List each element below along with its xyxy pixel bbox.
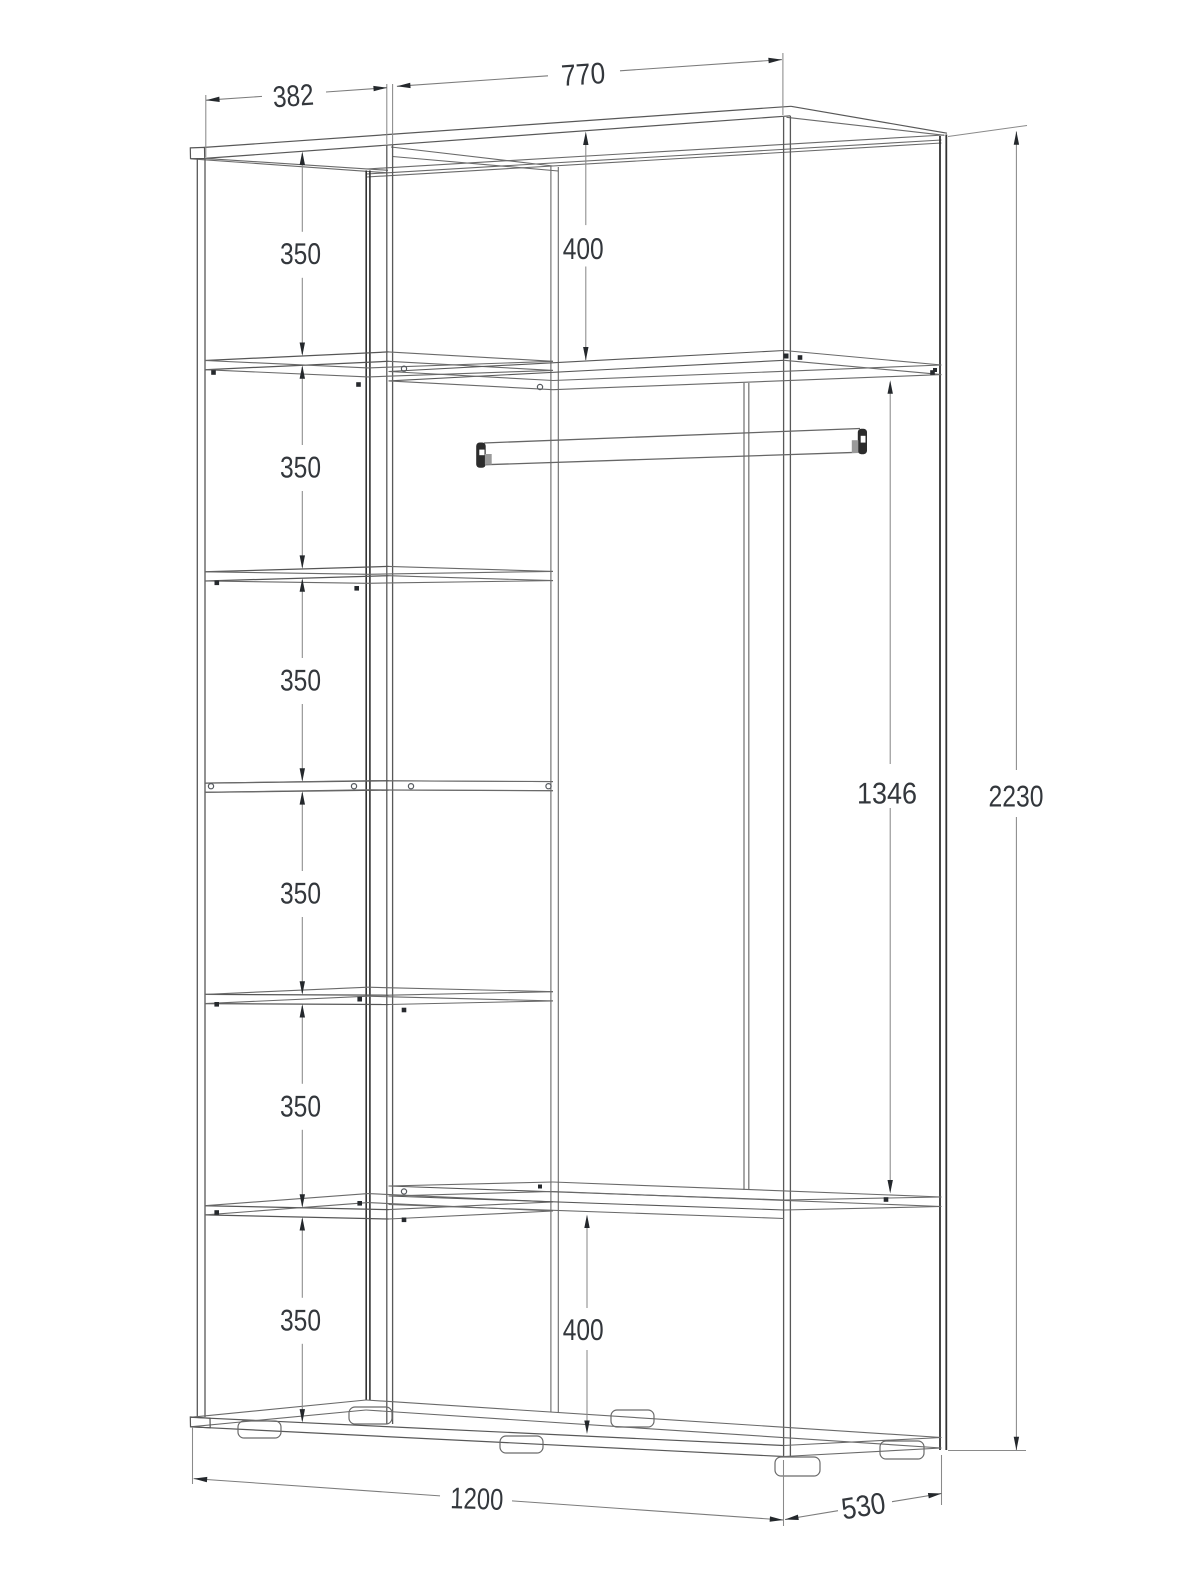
svg-text:530: 530 xyxy=(839,1487,888,1526)
svg-text:382: 382 xyxy=(272,79,315,115)
svg-text:1200: 1200 xyxy=(450,1482,504,1517)
svg-text:350: 350 xyxy=(280,452,321,485)
svg-text:770: 770 xyxy=(560,57,606,93)
svg-text:2230: 2230 xyxy=(989,781,1044,814)
svg-text:400: 400 xyxy=(563,1314,604,1347)
svg-text:350: 350 xyxy=(280,238,321,271)
svg-text:350: 350 xyxy=(280,878,321,911)
svg-text:350: 350 xyxy=(280,1304,321,1337)
svg-text:1346: 1346 xyxy=(857,778,917,811)
svg-text:400: 400 xyxy=(563,233,604,266)
svg-text:350: 350 xyxy=(280,665,321,698)
svg-text:350: 350 xyxy=(280,1090,321,1123)
